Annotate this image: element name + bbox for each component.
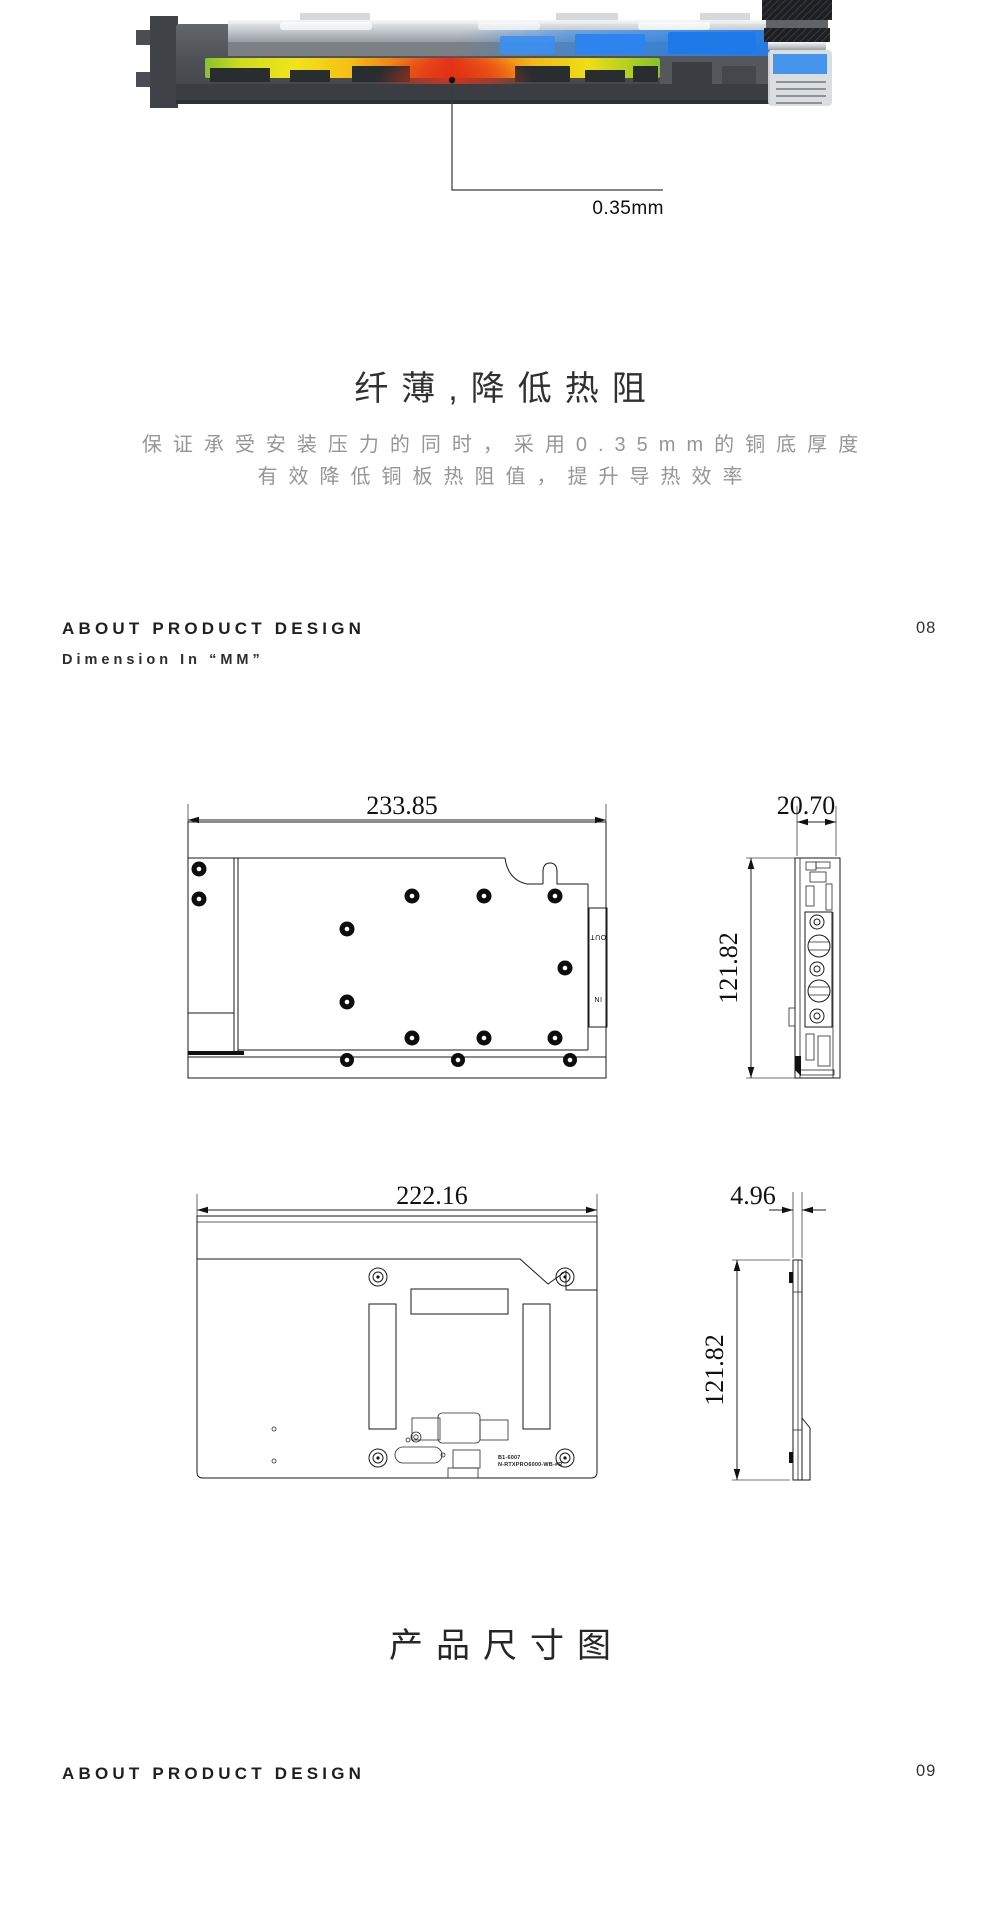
marking-line2: N-RTXPRO6000-WB-#R xyxy=(498,1462,562,1468)
port-out-label: OUT xyxy=(590,933,607,940)
dim-back-view-height: 121.82 xyxy=(700,1334,729,1406)
dim-top-view-width: 233.85 xyxy=(366,791,438,820)
drawing-caption: 产品尺寸图 xyxy=(0,1618,1000,1667)
fitting xyxy=(762,0,832,106)
marking-line1: B1-6007 xyxy=(498,1455,521,1461)
dim-top-view-height: 121.82 xyxy=(714,932,743,1004)
page-number-08: 08 xyxy=(916,619,936,638)
dim-back-view-width: 222.16 xyxy=(396,1181,468,1210)
footer-title: ABOUT PRODUCT DESIGN xyxy=(62,1764,365,1784)
intro-title: 纤薄,降低热阻 xyxy=(0,361,1000,410)
page-number-09: 09 xyxy=(916,1762,936,1781)
intro-subtitle-line2: 有效降低铜板热阻值，提升导热效率 xyxy=(11,461,1000,493)
dimension-drawings: 233.85 OUT IN xyxy=(0,770,1000,1500)
back-view-screws xyxy=(369,1268,574,1467)
top-view-drawing: 233.85 OUT IN xyxy=(188,791,607,1078)
top-view-screws xyxy=(192,862,578,1068)
dim-top-view-depth: 20.70 xyxy=(777,791,836,820)
waterblock-body xyxy=(136,13,770,108)
thickness-callout-label: 0.35mm xyxy=(430,198,664,220)
intro-subtitle-line1: 保证承受安装压力的同时，采用0.35mm的铜底厚度 xyxy=(11,429,1000,461)
top-view-side-drawing: 20.70 121.82 xyxy=(714,791,840,1078)
section-header-title: ABOUT PRODUCT DESIGN xyxy=(62,619,365,639)
back-view-side-drawing: 4.96 121.82 xyxy=(700,1181,826,1480)
back-view-drawing: 222.16 xyxy=(197,1181,597,1478)
port-in-label: IN xyxy=(594,995,602,1002)
section-header-subtitle: Dimension In “MM” xyxy=(62,652,264,668)
intro-subtitle: 保证承受安装压力的同时，采用0.35mm的铜底厚度 有效降低铜板热阻值，提升导热… xyxy=(0,429,1000,493)
dim-back-view-depth: 4.96 xyxy=(730,1181,776,1210)
